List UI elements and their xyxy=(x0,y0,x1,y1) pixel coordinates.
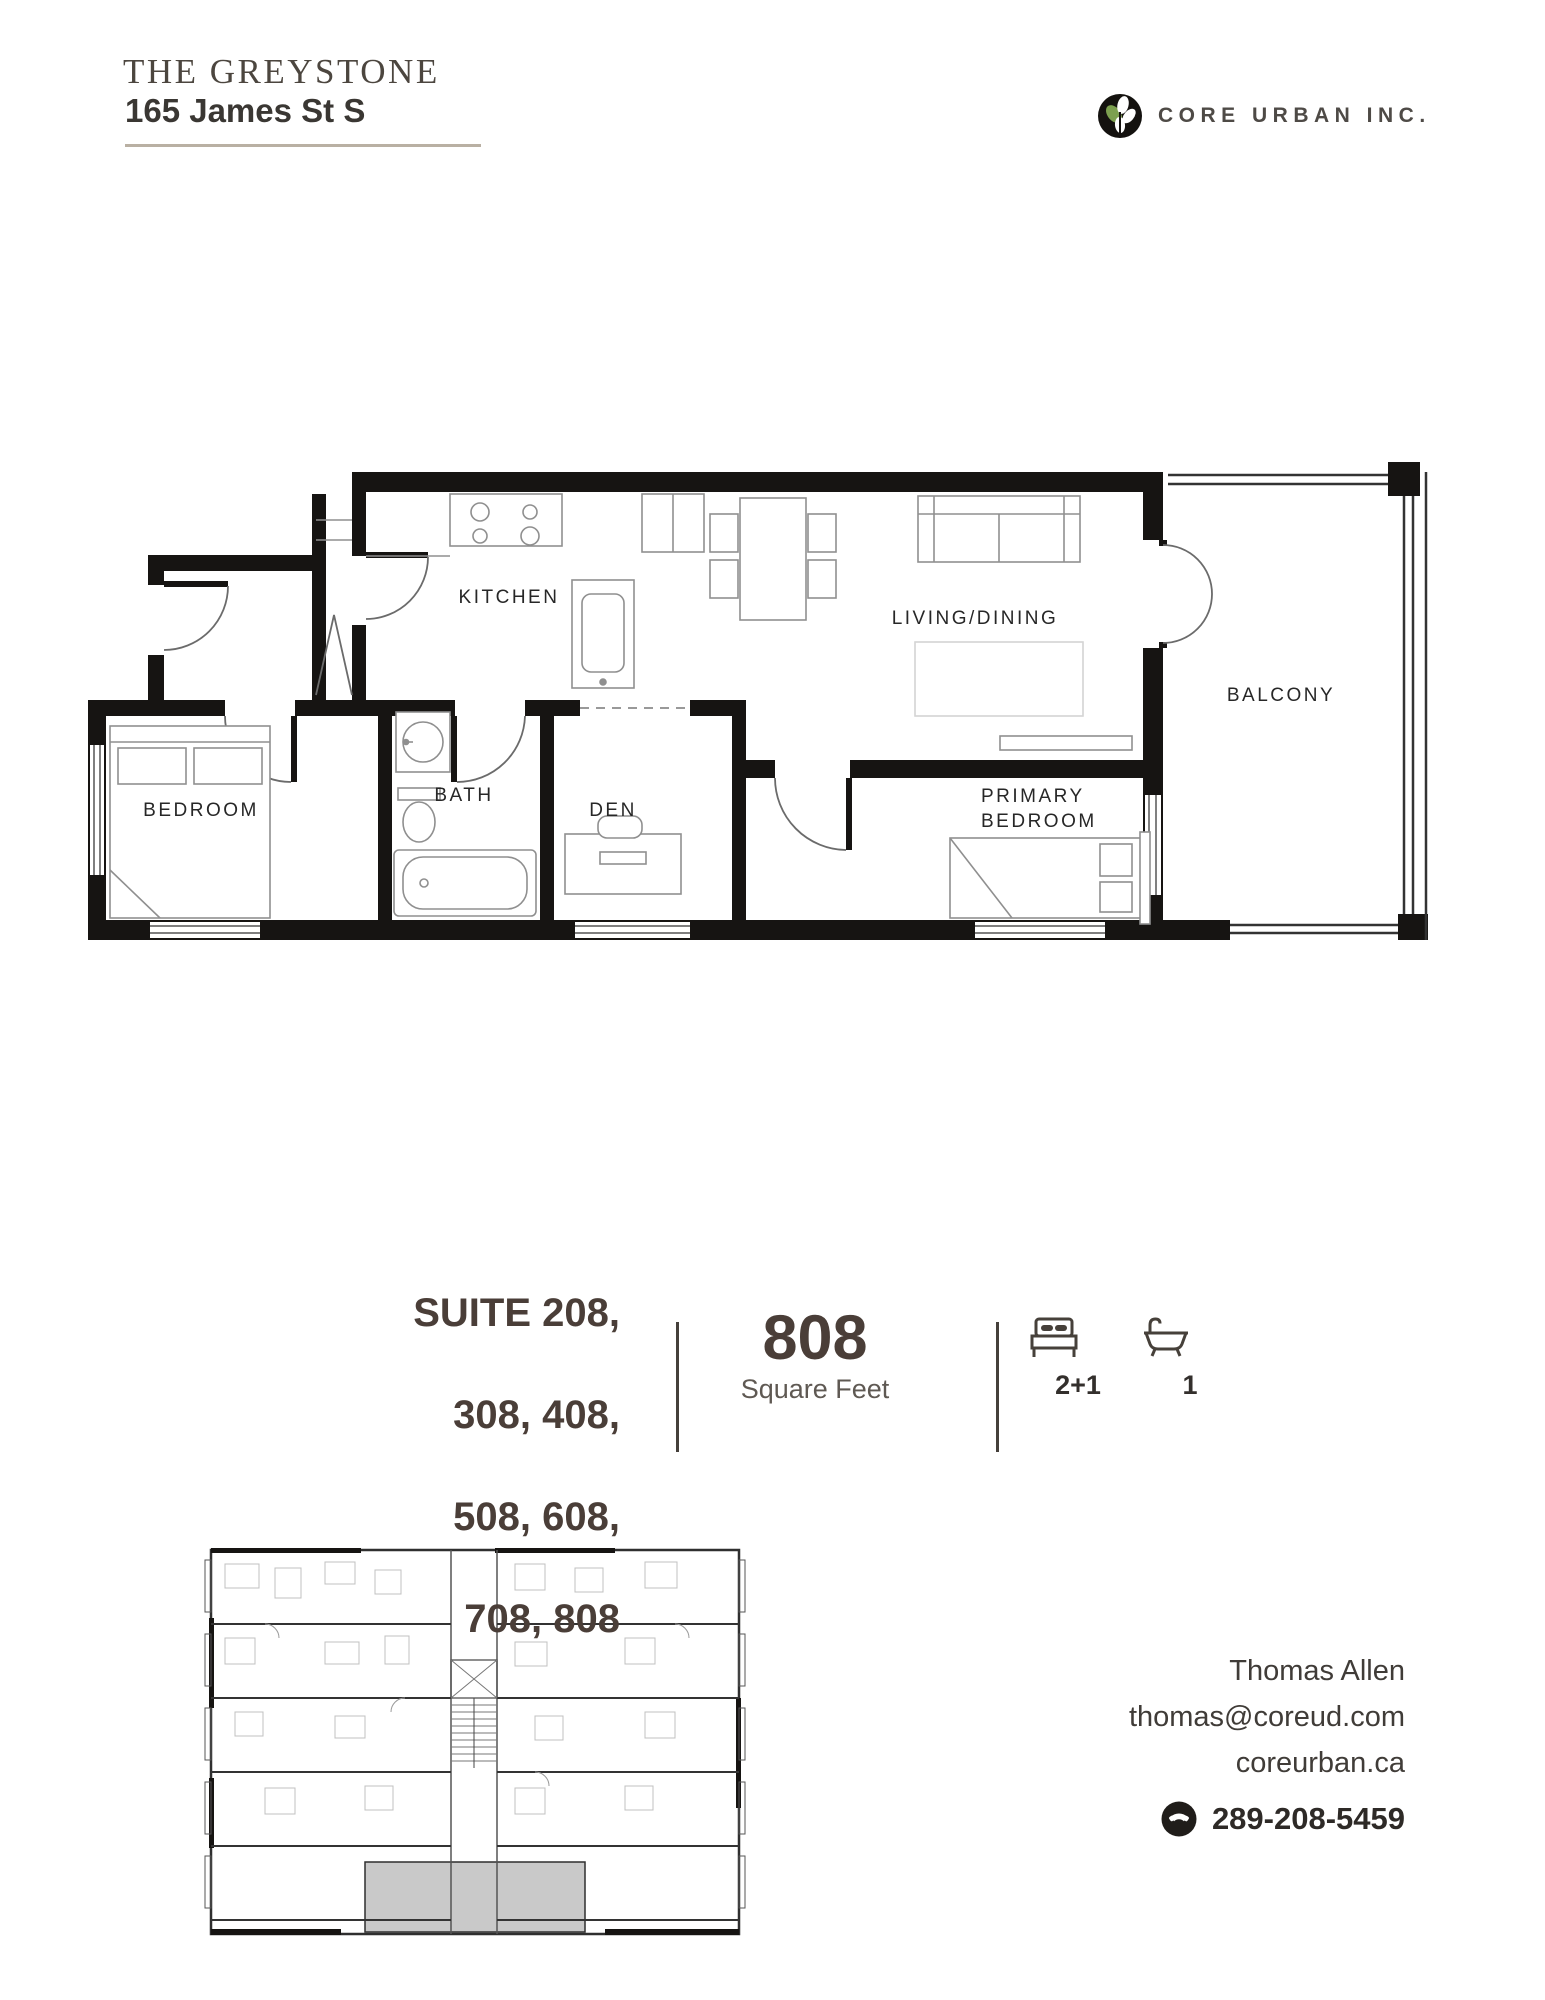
baths-block: 1 xyxy=(1140,1316,1240,1401)
room-label-kitchen: KITCHEN xyxy=(459,587,560,609)
room-label-den: DEN xyxy=(589,800,637,822)
room-label-bedroom: BEDROOM xyxy=(143,800,259,822)
room-label-bath: BATH xyxy=(434,785,493,807)
agent-name: Thomas Allen xyxy=(1129,1648,1405,1694)
bathtub-icon xyxy=(1140,1316,1240,1360)
room-label-living-dining: LIVING/DINING xyxy=(892,608,1059,630)
beds-block: 2+1 xyxy=(1028,1316,1128,1401)
contact-block: Thomas Allen thomas@coreud.com coreurban… xyxy=(1129,1648,1405,1842)
square-feet-label: Square Feet xyxy=(703,1374,927,1405)
baths-count: 1 xyxy=(1140,1370,1240,1401)
room-label-balcony: BALCONY xyxy=(1227,685,1335,707)
suite-numbers: SUITE 208, 308, 408, 508, 608, 708, 808 xyxy=(413,1288,620,1645)
phone-row[interactable]: 289-208-5459 xyxy=(1129,1796,1405,1842)
flyer-page: THE GREYSTONE 165 James St S CORE URBAN … xyxy=(0,0,1545,2000)
agent-website[interactable]: coreurban.ca xyxy=(1129,1740,1405,1786)
phone-icon xyxy=(1160,1800,1198,1838)
room-label-primary-bedroom: PRIMARY BEDROOM xyxy=(981,786,1097,833)
area-block: 808 Square Feet xyxy=(703,1306,927,1405)
beds-count: 2+1 xyxy=(1028,1370,1128,1401)
agent-email[interactable]: thomas@coreud.com xyxy=(1129,1694,1405,1740)
divider-2 xyxy=(996,1322,999,1452)
bed-icon xyxy=(1028,1316,1128,1360)
square-feet-value: 808 xyxy=(703,1306,927,1370)
phone-number: 289-208-5459 xyxy=(1212,1796,1405,1842)
divider-1 xyxy=(676,1322,679,1452)
